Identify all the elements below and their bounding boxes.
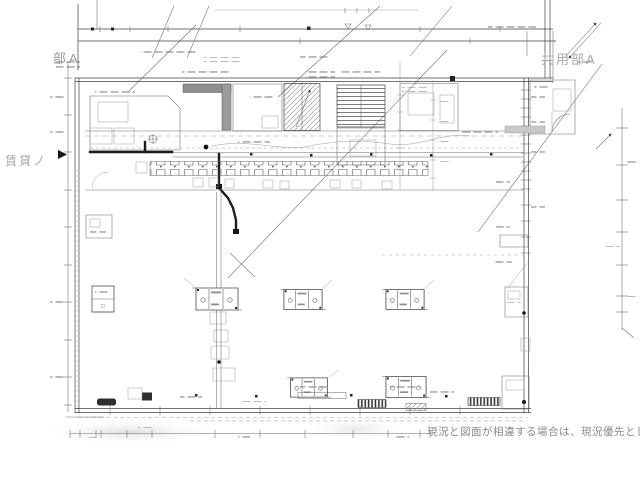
stair-hatched [284, 84, 320, 131]
floor-plan-canvas [0, 0, 640, 486]
left-wall-marker-arrow [58, 150, 67, 159]
corridor-fixtures [136, 162, 428, 176]
left-dimension-line [50, 62, 104, 417]
shaded-shaft [183, 84, 231, 130]
right-wall-blocks [494, 235, 530, 351]
area-label-top-left: 部A [53, 48, 81, 67]
equipment-block [280, 290, 325, 310]
area-label-left: 賃貸ノ [5, 152, 47, 169]
area-label-top-right: 共用部A [541, 49, 597, 68]
right-dimension-line [604, 108, 639, 338]
scan-smudge [50, 419, 400, 443]
dark-pill-equipment [97, 399, 116, 406]
door-swing-arc-2 [92, 172, 108, 188]
open-hall [86, 192, 530, 408]
door-swing-arc [552, 114, 570, 132]
left-wall-block [86, 215, 112, 238]
section-cut-arrows [564, 23, 611, 149]
equipment-block [92, 286, 114, 312]
stair-treads [337, 85, 385, 165]
equipment-block [382, 290, 427, 310]
corridor [85, 126, 545, 234]
corner-block-bottom-right [502, 376, 529, 409]
scanned-floor-plan-page: { "labels": { "top_left_area": "部A", "le… [0, 0, 640, 486]
revision-note: 現況と図面が相違する場合は、現況優先とし [427, 424, 640, 439]
equipment-block [192, 288, 242, 310]
fixture-row-2 [193, 178, 392, 189]
grille-strip [468, 398, 500, 406]
grille-strip [358, 400, 386, 408]
survey-point-symbol [148, 134, 158, 144]
interior-riser-cluster [210, 312, 235, 381]
dark-box-equipment [142, 393, 152, 401]
